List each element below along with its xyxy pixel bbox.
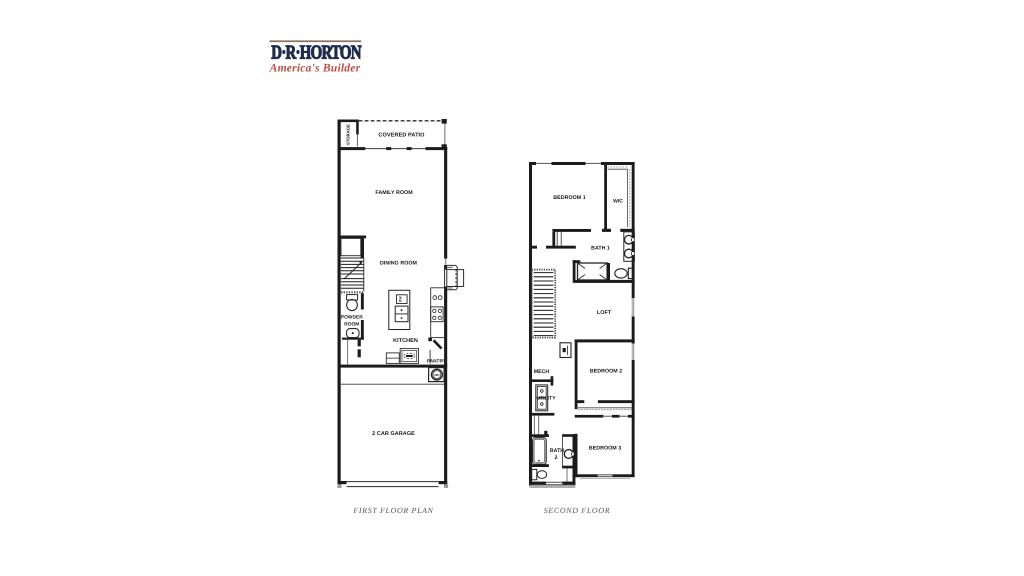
svg-text:STORAGE: STORAGE [346,124,351,145]
svg-text:2: 2 [555,455,558,461]
svg-text:ROOM: ROOM [344,322,359,328]
svg-text:MECH: MECH [534,369,550,375]
svg-text:DW: DW [399,296,403,302]
svg-text:KITCHEN: KITCHEN [393,338,418,344]
svg-text:BATH 1: BATH 1 [591,246,610,252]
svg-text:BEDROOM 2: BEDROOM 2 [590,368,623,374]
svg-text:PANTRY: PANTRY [427,359,447,364]
svg-text:2 CAR GARAGE: 2 CAR GARAGE [372,431,415,437]
svg-text:WIC: WIC [613,199,623,205]
svg-text:POWDER: POWDER [341,314,363,320]
svg-text:America's Builder: America's Builder [269,61,361,74]
svg-text:FAMILY ROOM: FAMILY ROOM [375,190,413,196]
svg-text:LOFT: LOFT [597,310,612,316]
svg-text:UTILITY: UTILITY [536,395,556,401]
svg-text:FIRST FLOOR PLAN: FIRST FLOOR PLAN [352,506,433,515]
svg-text:WH: WH [434,373,439,377]
svg-text:COVERED PATIO: COVERED PATIO [378,133,425,139]
svg-text:DINING ROOM: DINING ROOM [380,260,418,266]
svg-text:SECOND FLOOR: SECOND FLOOR [544,506,611,515]
svg-text:BEDROOM 1: BEDROOM 1 [553,195,586,201]
svg-text:BEDROOM 3: BEDROOM 3 [589,445,622,451]
